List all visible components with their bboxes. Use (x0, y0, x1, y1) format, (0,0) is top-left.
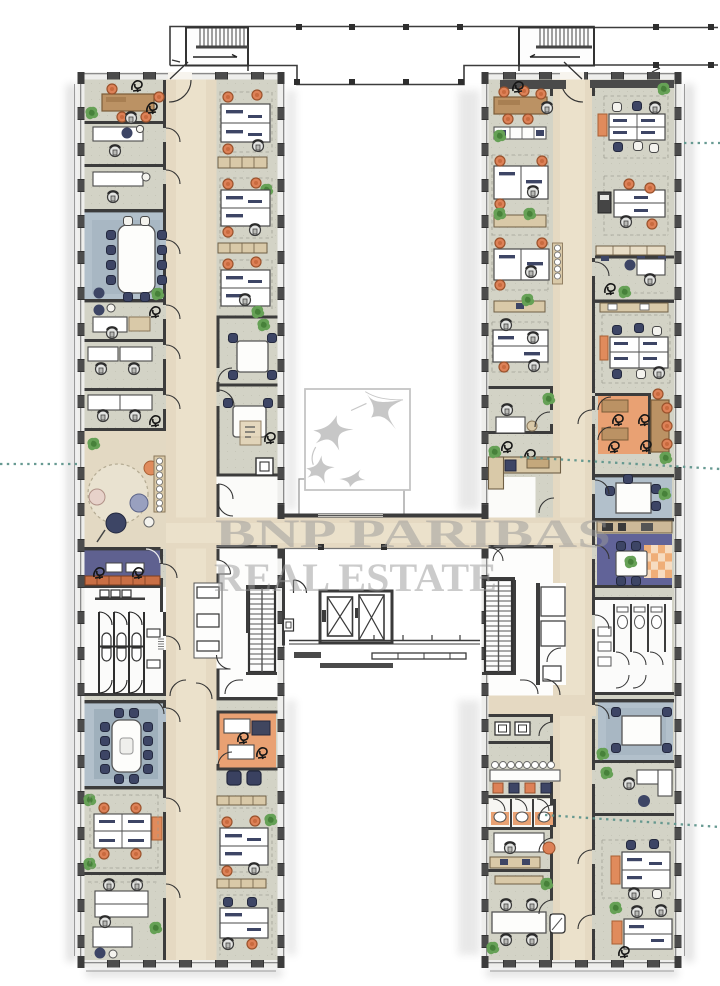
svg-text:BNP PARIBAS: BNP PARIBAS (215, 511, 611, 556)
svg-text:REAL ESTATE: REAL ESTATE (214, 555, 497, 600)
